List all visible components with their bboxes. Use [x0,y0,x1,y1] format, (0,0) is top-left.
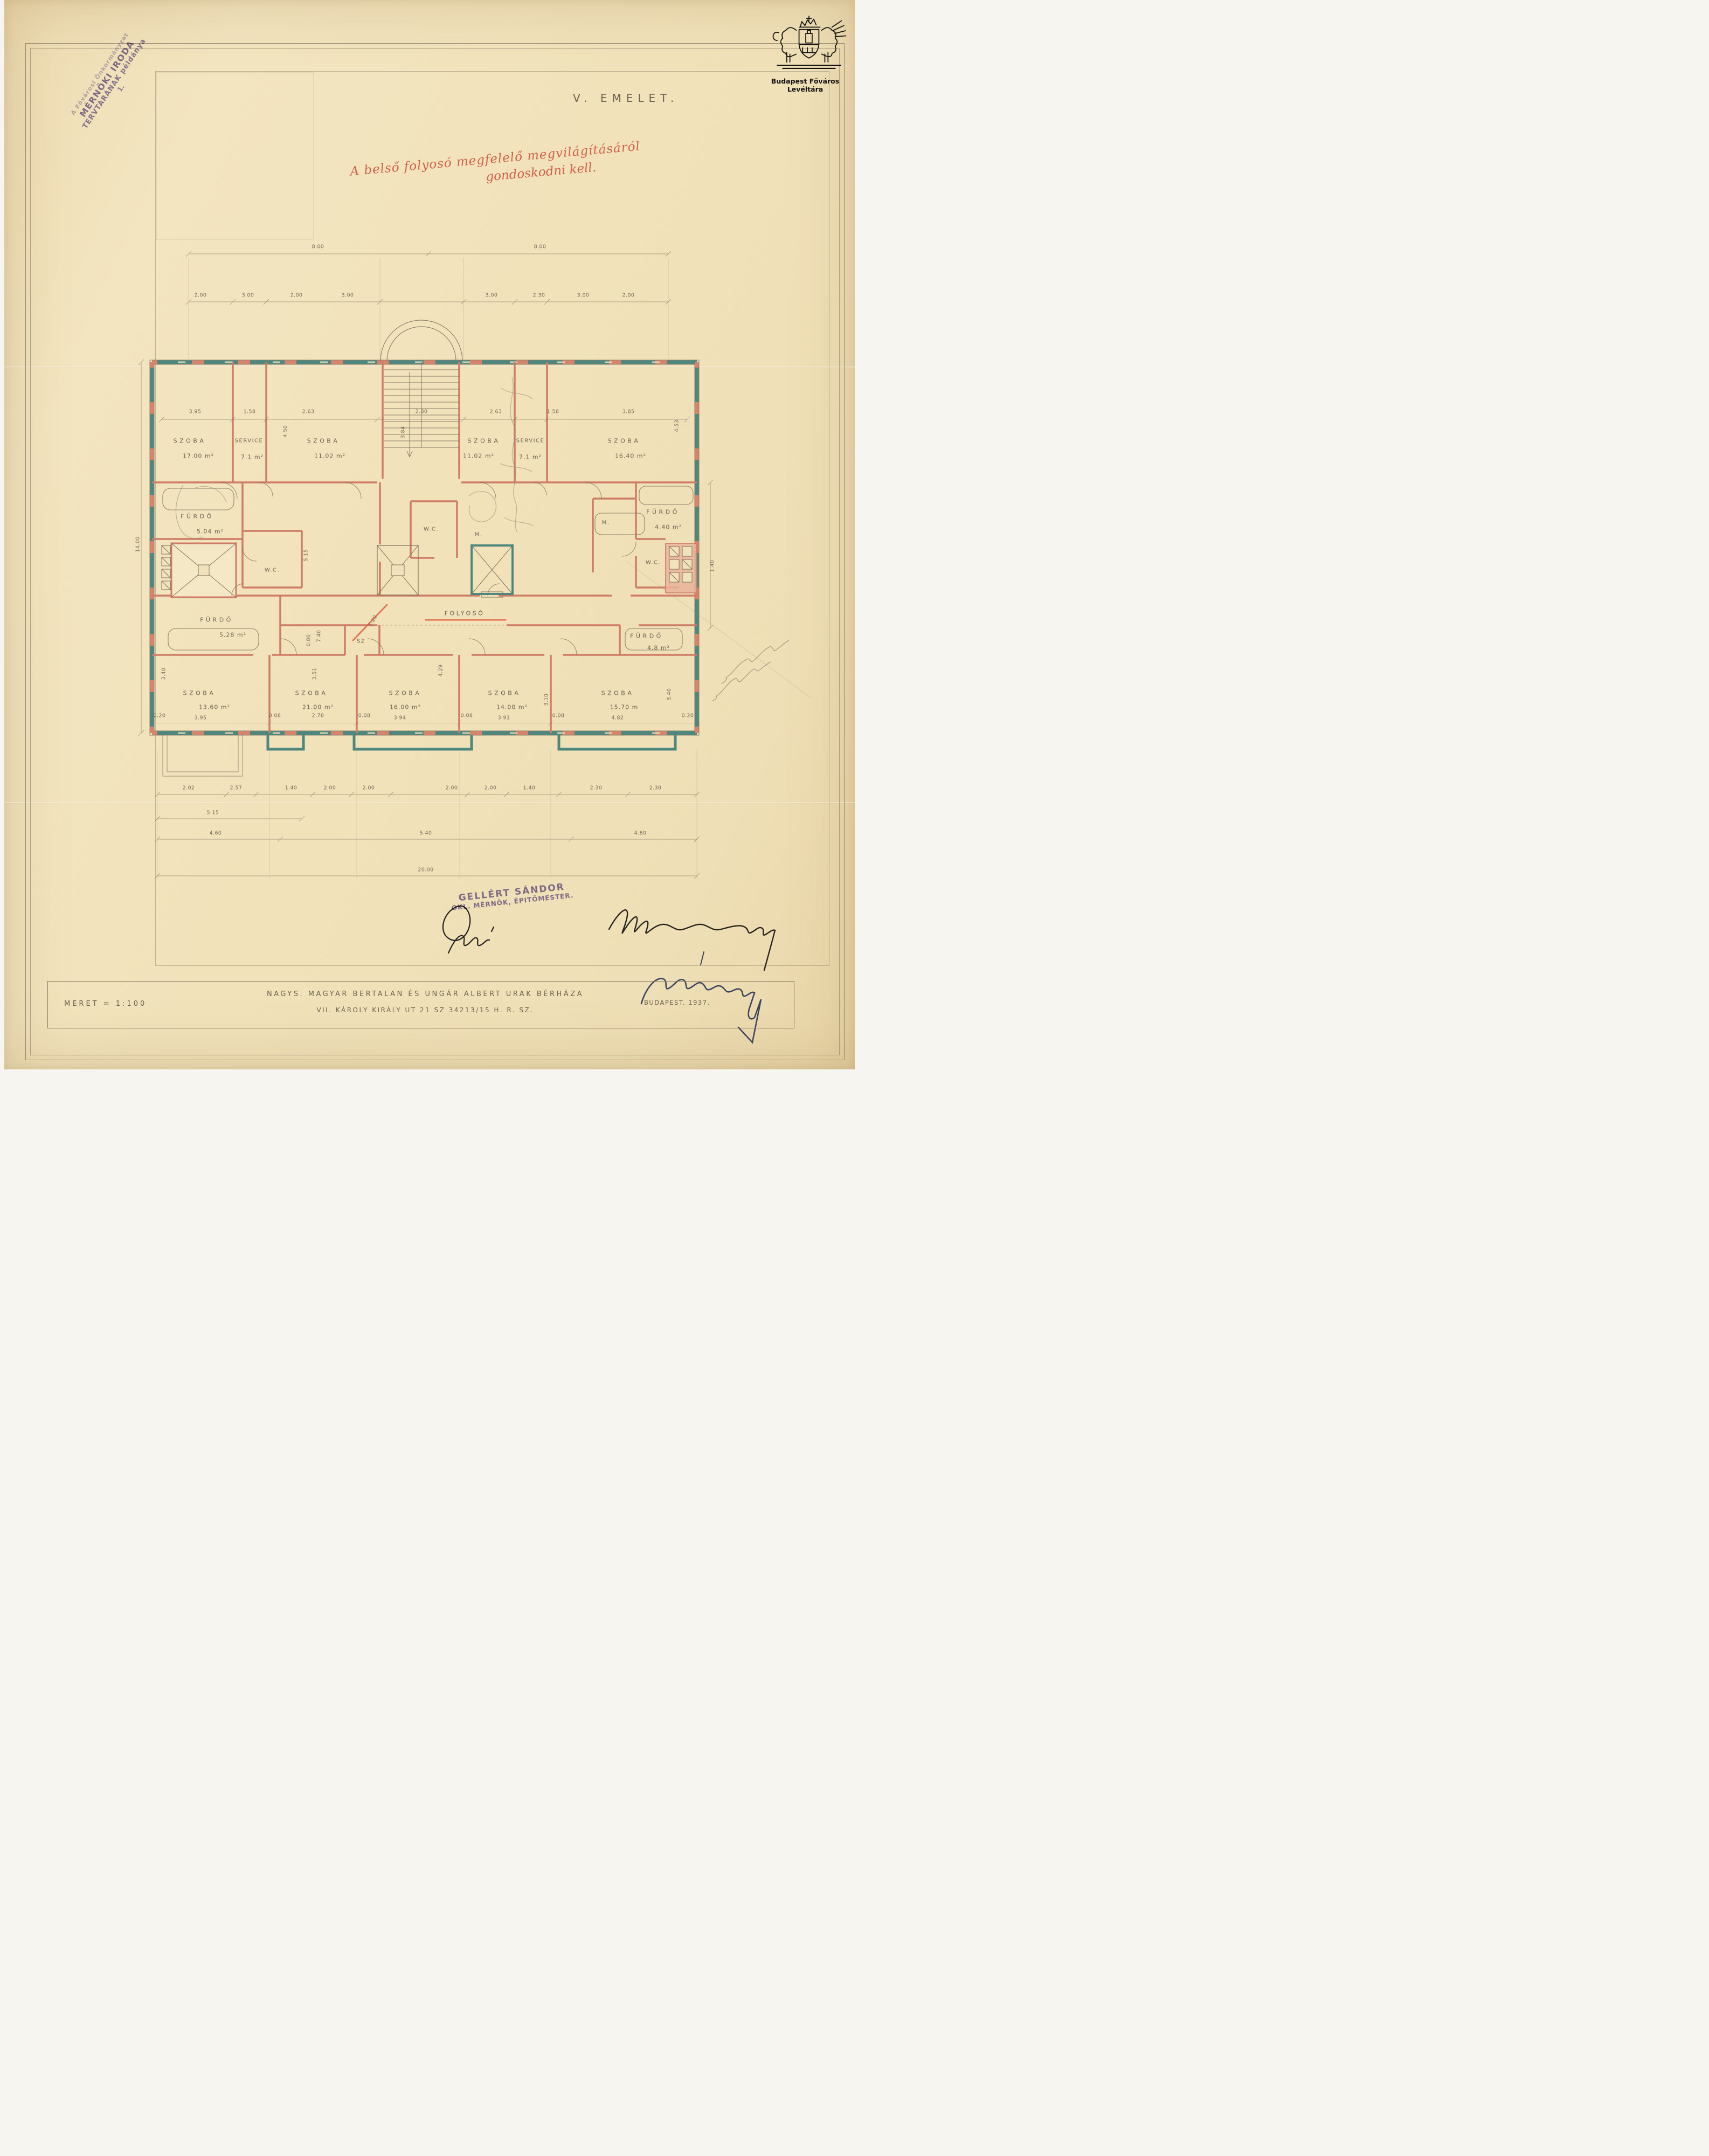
plan-label-small: SERVICE [516,438,545,444]
stair-direction-arrow [407,372,412,457]
plan-label-vdim: 4.53 [674,420,680,432]
plan-label-dim: 2.57 [230,785,243,791]
plan-label-dim: 1.40 [285,785,297,791]
plan-label-dim: 0.20 [154,713,166,719]
plan-label-vdim: 3.40 [161,668,167,680]
plan-label-room: FÜRDŐ [200,617,233,624]
elevator-shaft [472,545,513,597]
plan-label-dim: 20.00 [418,867,433,873]
plan-label-vdim: 3.84 [400,426,406,439]
plan-label-area: 21.00 m² [302,704,334,711]
plan-label-dim: 2.02 [183,785,195,791]
pencil-annotation [712,640,789,701]
plan-label-area: 16.00 m² [390,704,421,711]
project-address: VII. KÁROLY KIRÁLY UT 21 SZ 34213/15 H. … [156,1006,695,1014]
plan-label-dim: 2.00 [290,293,303,299]
plan-label-dim: 3.91 [498,715,510,721]
plan-label-dim: 8.00 [534,244,546,250]
plan-label-area: 13.60 m² [199,704,230,711]
plan-label-room: SZOBA [183,690,216,697]
plan-label-dim: 2.00 [485,785,497,791]
plan-label-vdim: 3.51 [312,668,318,680]
plan-label-dim: 1.58 [547,409,559,415]
plan-label-dim: 0.08 [269,713,281,719]
plan-label-dim: 3.95 [189,409,202,415]
plan-label-small: W.C. [646,560,661,566]
plan-label-dim: 5.15 [207,810,219,816]
plan-label-area: 4.8 m² [647,645,670,652]
archive-logo-caption: Budapest Főváros Levéltára [757,77,854,93]
light-shafts [171,543,418,597]
plan-label-area: 17.00 m² [183,453,214,460]
plan-label-vdim: 14.00 [135,536,141,552]
plan-label-dim: 2.78 [312,713,324,719]
scanned-floor-plan-page: { "archive_logo": { "caption": "Budapest… [0,0,855,1078]
plan-label-vdim: 7.40 [316,630,322,642]
plan-label-small: SERVICE [235,438,264,444]
plan-label-dim: 2.00 [324,785,336,791]
plan-label-area: 11.02 m² [463,453,494,460]
plan-label-dim: 0.08 [358,713,371,719]
door-arcs [221,482,636,655]
plan-label-small: W.C. [424,527,439,533]
griffin-supporter-icon [822,27,838,57]
architect-signature [443,906,494,953]
plan-label-dim: 2.00 [622,293,635,299]
plan-label-vdim: 3.10 [544,694,550,706]
plan-label-room: FÜRDŐ [646,509,680,516]
plan-label-dim: 4.60 [634,831,647,837]
plan-label-corridor: FOLYOSÓ [445,610,485,617]
title-block: MERET = 1:100 NAGYS. MAGYAR BERTALAN ÉS … [47,981,794,1028]
plan-label-room: FÜRDŐ [630,633,663,640]
plan-label-dim: 3.00 [577,293,590,299]
place-date: BUDAPEST. 1937. [644,999,710,1006]
plan-label-dim: 2.63 [490,409,502,415]
plan-label-room: SZOBA [601,690,634,697]
plan-label-area: 7.1 m² [519,454,542,461]
plan-label-vdim: 1.40 [710,560,716,572]
plan-label-area: 7.1 m² [241,454,264,461]
entrance-arch [380,320,462,361]
plan-label-room: SZOBA [468,438,501,445]
plan-label-dim: 3.85 [622,409,635,415]
plan-label-small: W.C. [265,568,280,573]
balcony-outline [163,734,243,776]
plan-label-dim: 2.00 [195,293,207,299]
plan-label-room: SZOBA [307,438,340,445]
crown-icon [799,19,820,27]
plan-label-area: 16.40 m² [615,453,646,460]
plan-label-dim: 1.40 [523,785,536,791]
plan-label-dim: 2.30 [590,785,603,791]
plan-label-dim: 4.82 [612,715,624,721]
owner-signature [609,910,775,970]
scale-label: MERET = 1:100 [64,1000,147,1008]
plan-label-vdim: 4.29 [438,665,444,677]
plan-label-small: SZ [357,639,365,645]
plan-label-room: SZOBA [608,438,641,445]
lion-supporter-icon [773,27,797,57]
plan-label-dim: 3.94 [394,715,406,721]
project-title: NAGYS. MAGYAR BERTALAN ÉS UNGÁR ALBERT U… [156,990,695,998]
plan-label-area: 5.04 m² [197,528,224,535]
plan-label-dim: 2.80 [416,409,428,415]
plan-label-dim: 2.30 [649,785,662,791]
plan-label-dim: 2.30 [533,293,545,299]
archive-coat-of-arms [765,12,853,77]
plan-label-area: 5.28 m² [219,632,246,639]
plan-label-dim: 0.08 [552,713,565,719]
plan-label-small: M. [602,520,610,526]
griffin-wing-icon [832,21,846,37]
plan-label-dim: 8.00 [312,244,324,250]
plan-label-vdim: 4.50 [283,425,289,438]
plan-label-small: M. [475,532,483,538]
plan-label-dim: 4.60 [210,831,222,837]
pencil-scribbles [176,377,811,698]
plan-label-dim: 3.95 [195,715,207,721]
plan-label-room: SZOBA [295,690,328,697]
plan-label-dim: 0.20 [682,713,694,719]
plan-label-vdim: 0.80 [306,634,312,647]
plan-label-dim: 3.00 [242,293,254,299]
plan-label-dim: 1.58 [244,409,256,415]
pencil-sketch-rect [156,72,314,239]
plan-label-dim: 2.00 [363,785,375,791]
plan-label-room: SZOBA [174,438,206,445]
plan-label-dim: 5.40 [420,831,432,837]
plan-label-vdim: 3.40 [667,688,673,701]
plan-label-dim: 3.00 [342,293,354,299]
plan-label-area: 14.00 m² [496,704,528,711]
plan-label-room: SZOBA [488,690,521,697]
plan-label-room: SZOBA [389,690,422,697]
plan-label-area: 4.40 m² [655,524,682,531]
plan-label-vdim: 5.15 [303,549,309,562]
plan-label-dim: 0.08 [461,713,473,719]
page-title: V. EMELET. [573,92,679,105]
plan-label-area: 15.70 m [610,704,639,711]
plan-label-dim: 2.63 [302,409,315,415]
plan-label-dim: 3.00 [486,293,498,299]
plan-label-dim: 2.00 [446,785,458,791]
plan-label-room: FÜRDŐ [181,513,214,520]
plan-label-area: 11.02 m² [314,453,345,460]
